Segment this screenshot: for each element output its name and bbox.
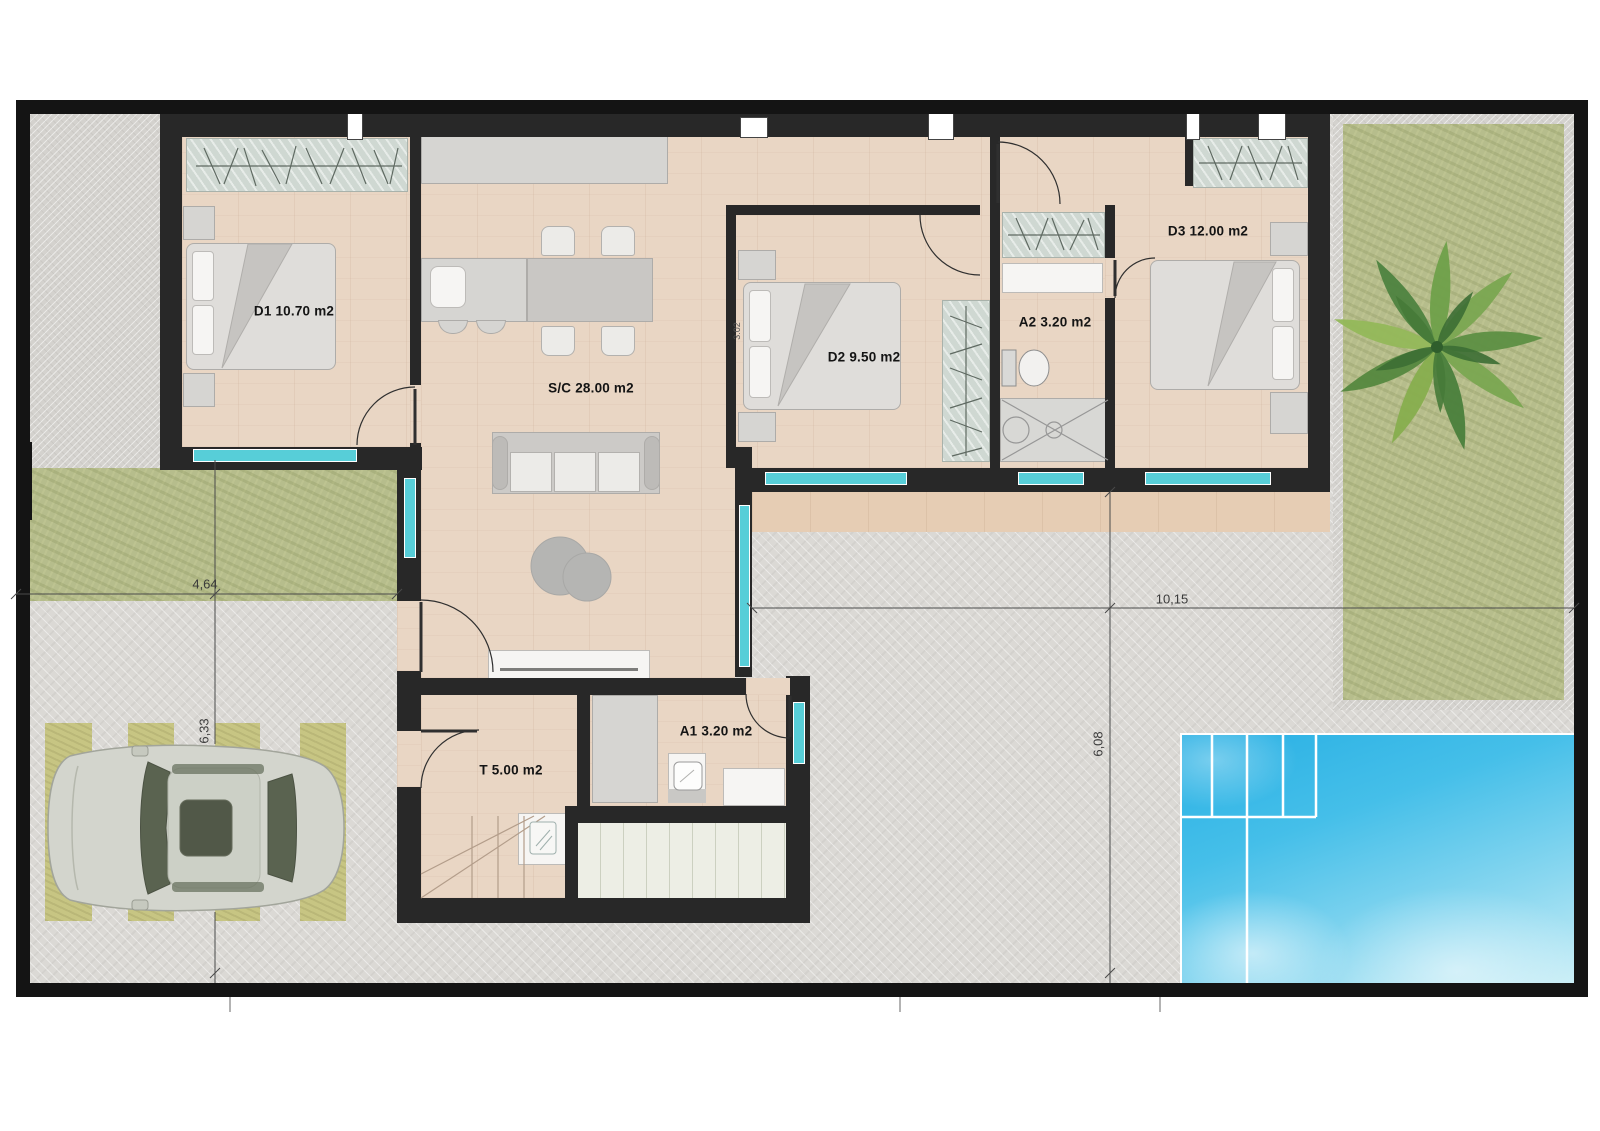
pool-step-lines	[1180, 733, 1316, 983]
room-label-bedroom2: D2 9.50 m2	[828, 350, 901, 365]
dimension-bedroom2-depth: 3.02	[732, 322, 742, 340]
dimension-lines	[11, 460, 1579, 983]
dimension-right-width: 10,15	[1156, 592, 1189, 607]
dimension-left-depth: 6,33	[197, 718, 212, 743]
mirror-glyph	[530, 822, 556, 854]
room-label-living: S/C 28.00 m2	[548, 381, 634, 396]
room-label-utility: T 5.00 m2	[479, 763, 542, 778]
door-arcs	[357, 142, 1155, 788]
wardrobe-hangers	[196, 146, 1302, 456]
washer-door-glyph	[674, 762, 702, 790]
room-label-bathroom1: A1 3.20 m2	[680, 724, 753, 739]
room-label-bedroom3: D3 12.00 m2	[1168, 224, 1248, 239]
dimension-front-width: 4,64	[192, 577, 217, 592]
bed-blanket-folds	[222, 244, 1276, 406]
room-label-bedroom1: D1 10.70 m2	[254, 304, 334, 319]
toilet-glyph	[1002, 350, 1049, 386]
boundary-ticks	[230, 997, 1160, 1012]
shower-glyph	[1002, 400, 1108, 460]
dimension-right-depth: 6,08	[1091, 731, 1106, 756]
door-leaves	[415, 144, 1115, 737]
plan-linework	[0, 0, 1600, 1131]
rug	[531, 537, 611, 601]
room-label-bathroom2: A2 3.20 m2	[1019, 315, 1092, 330]
floor-plan-canvas: D1 10.70 m2 S/C 28.00 m2 D2 9.50 m2 A2 3…	[0, 0, 1600, 1131]
stairs-glyph	[421, 816, 545, 898]
